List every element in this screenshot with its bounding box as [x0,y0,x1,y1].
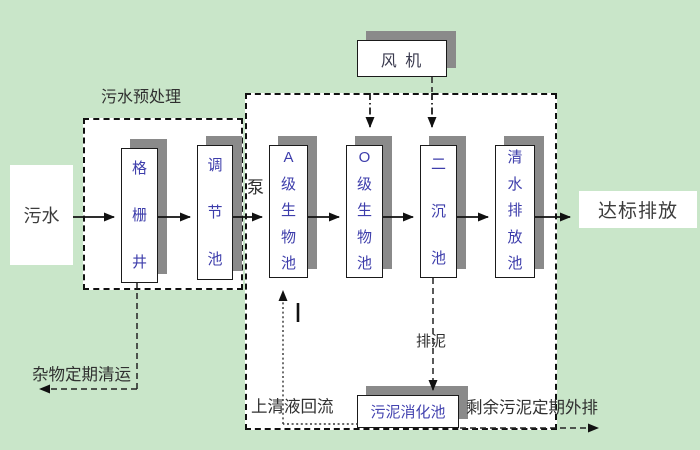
regulating-tank: 调 节 池 [197,145,233,280]
pretreatment-zone-title: 污水预处理 [101,89,181,107]
debris-removal-label: 杂物定期清运 [32,366,131,384]
secondary-sedimentation-tank: 二 沉 池 [420,145,457,278]
o-stage-bio-tank: O 级 生 物 池 [346,145,383,278]
process-flow-diagram: 污水 达标排放 格 栅 井 调 节 池 A 级 生 物 池 O 级 生 物 池 … [0,0,700,450]
excess-sludge-label: 剩余污泥定期外排 [466,399,598,417]
pump-label: 泵 [247,179,264,198]
sludge-digester-tank: 污泥消化池 [357,395,459,428]
supernatant-return-label: 上清液回流 [251,398,334,416]
source-node: 污水 [10,165,73,265]
grid-well-tank: 格 栅 井 [121,148,158,283]
fan-blower-node: 风 机 [357,40,447,77]
sludge-drain-label: 排泥 [416,334,446,351]
clean-water-discharge-tank: 清 水 排 放 池 [495,145,535,278]
a-stage-bio-tank: A 级 生 物 池 [269,145,308,278]
outfall-node: 达标排放 [579,191,697,228]
